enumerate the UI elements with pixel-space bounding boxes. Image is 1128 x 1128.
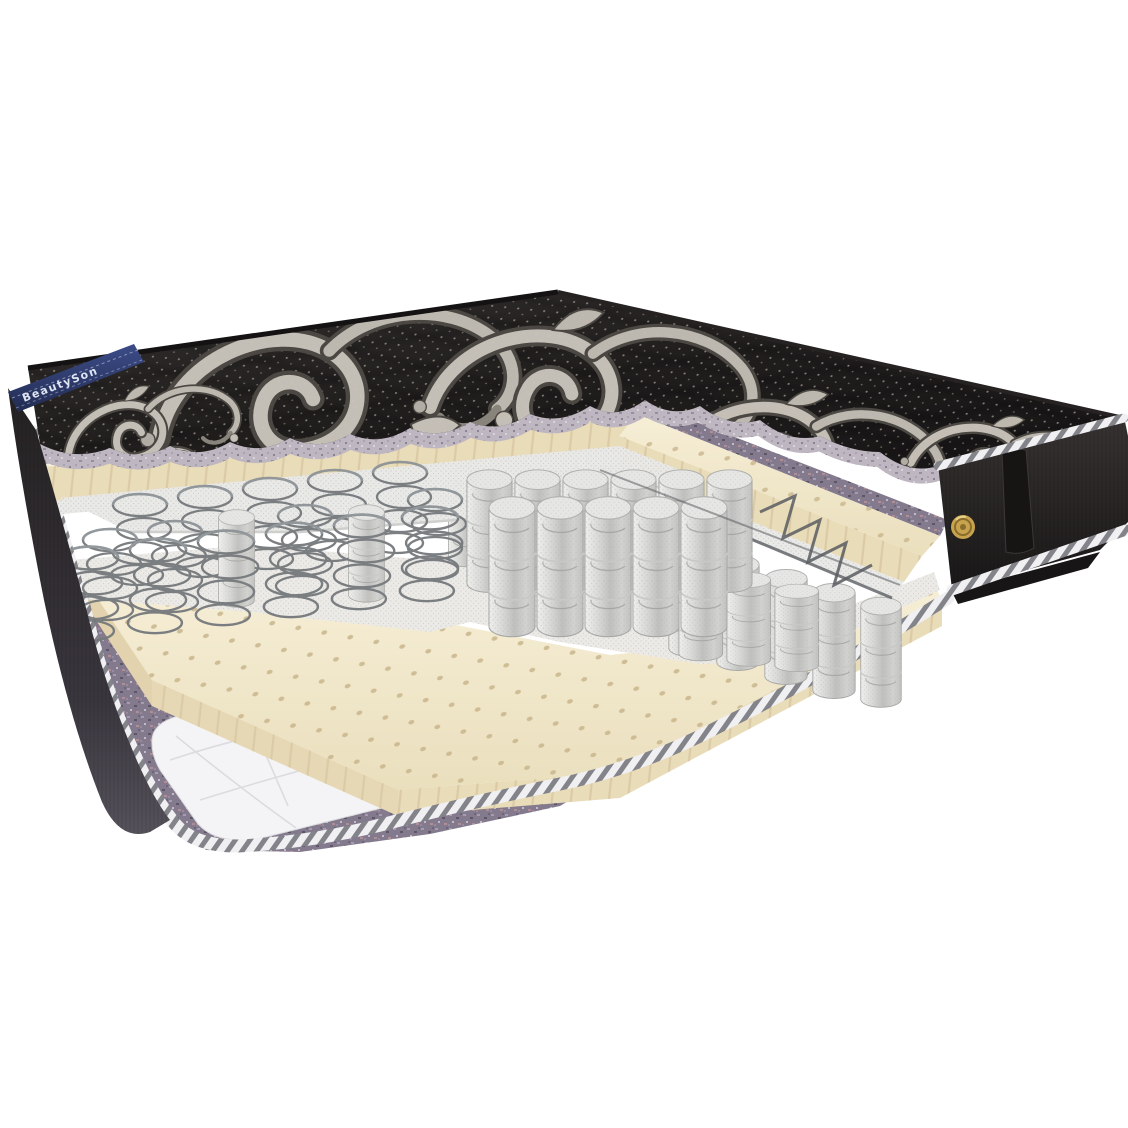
mattress-scene: BeautySon <box>0 0 1128 1128</box>
mattress-cutaway-photo: BeautySon <box>0 0 1128 1128</box>
air-vent <box>951 515 975 539</box>
